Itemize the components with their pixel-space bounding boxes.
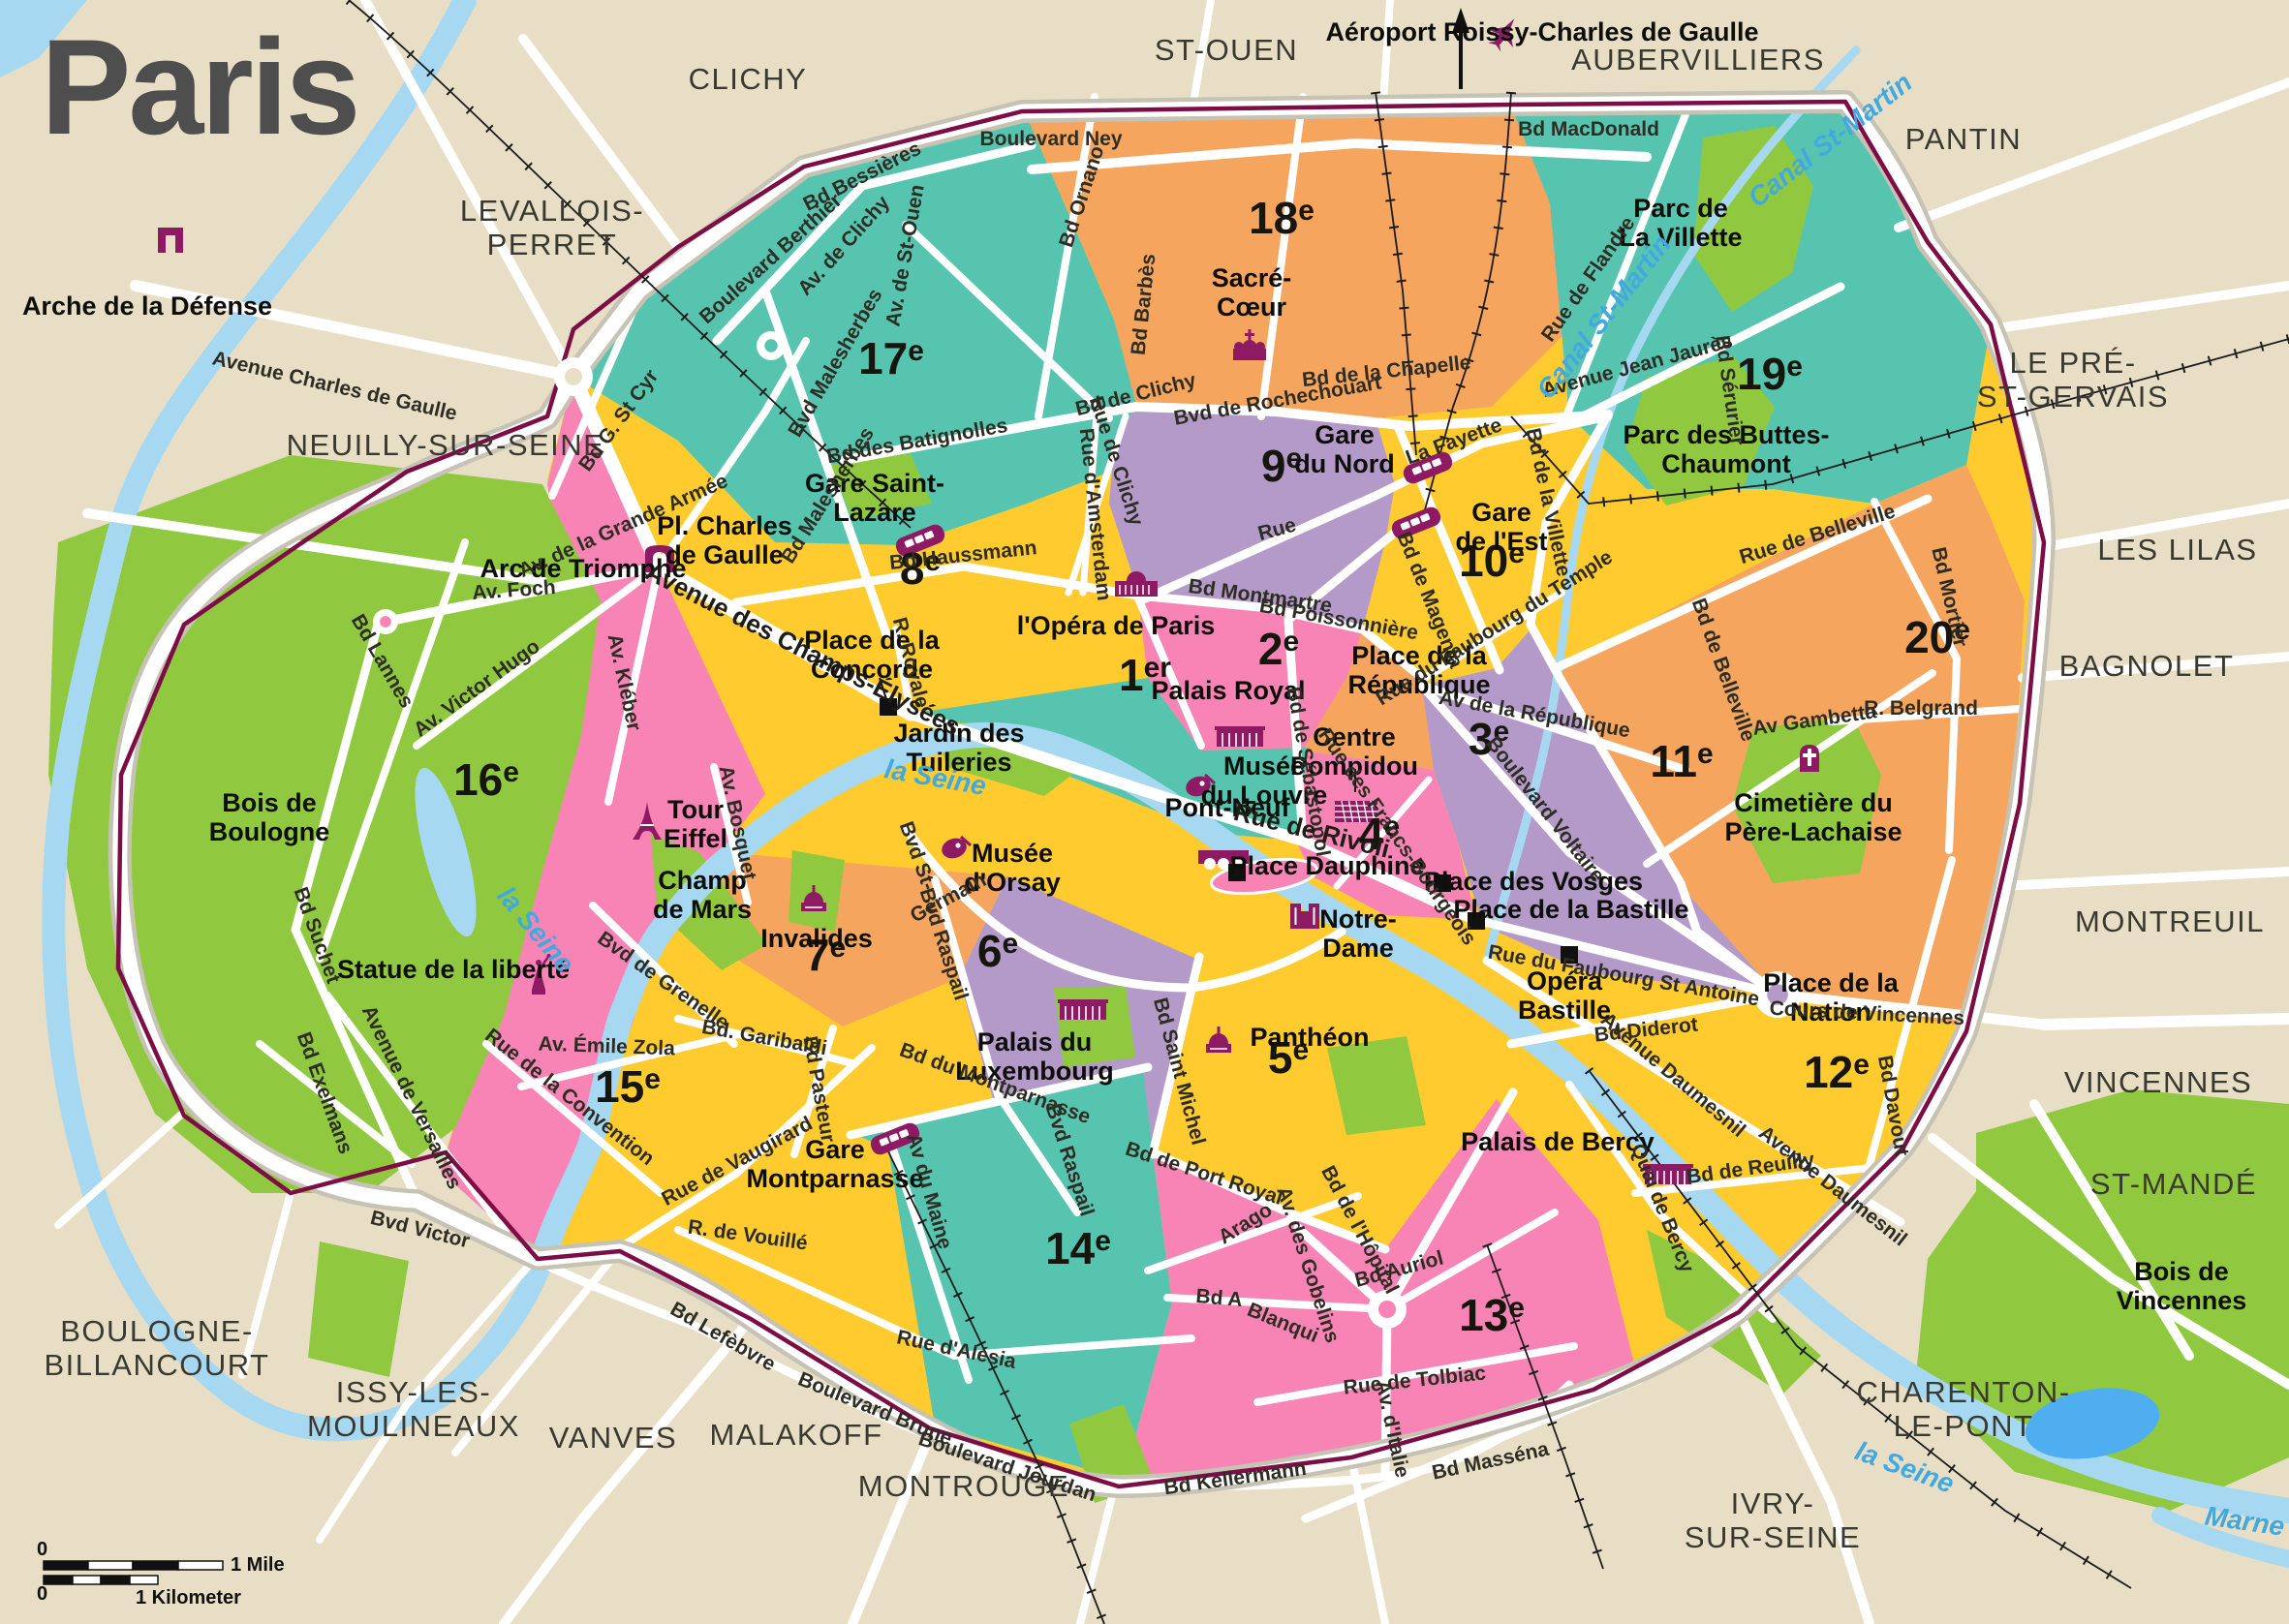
landmark-label: Palais Royal xyxy=(1151,676,1305,705)
suburb-label: CLICHY xyxy=(689,62,808,96)
scale-zero: 0 xyxy=(37,1583,47,1605)
map-title: Paris xyxy=(41,11,357,163)
suburb-label: MALAKOFF xyxy=(709,1418,882,1452)
suburb-label: NEUILLY-SUR-SEINE xyxy=(287,428,605,462)
cross-icon xyxy=(1800,745,1819,772)
suburb-label: ISSY-LES-MOULINEAUX xyxy=(307,1375,520,1443)
landmark-label: Invalides xyxy=(760,924,873,953)
scale-mile-label: 1 Mile xyxy=(231,1554,285,1576)
landmark-label: Pl. Charlesde Gaulle xyxy=(657,511,792,569)
suburb-label: AUBERVILLIERS xyxy=(1571,43,1825,77)
landmark-label: Notre-Dame xyxy=(1319,904,1397,963)
suburb-label: MONTREUIL xyxy=(2075,904,2265,938)
paris-map-page: ParisLEVALLOIS-PERRETCLICHYST-OUENAUBERV… xyxy=(0,0,2289,1624)
landmark-label: Sacré-Cœur xyxy=(1212,263,1292,322)
airport-label: Aéroport Roissy-Charles de Gaulle xyxy=(1325,17,1758,46)
street-label: Bd A xyxy=(1195,1285,1244,1311)
street-label: Bd MacDonald xyxy=(1518,118,1659,140)
suburb-label: ST-MANDÉ xyxy=(2090,1167,2257,1201)
street-label: Boulevard Ney xyxy=(979,128,1122,150)
suburb-label: ST-OUEN xyxy=(1155,33,1298,67)
landmark-label: Place des Vosges xyxy=(1424,867,1643,896)
roundabout xyxy=(380,616,391,628)
suburb-label: PANTIN xyxy=(1905,122,2022,156)
road xyxy=(2044,1019,2289,1025)
landmark-label: Palais de Bercy xyxy=(1461,1127,1655,1156)
landmark-label: Place Dauphine xyxy=(1229,851,1424,880)
landmark-label: Champde Mars xyxy=(653,866,752,924)
suburb-label: BAGNOLET xyxy=(2059,649,2235,683)
scale-zero: 0 xyxy=(37,1539,47,1560)
paris-map: ParisLEVALLOIS-PERRETCLICHYST-OUENAUBERV… xyxy=(0,0,2289,1624)
street-label: R. Belgrand xyxy=(1864,697,1978,720)
landmark-label: Cimetière duPère-Lachaise xyxy=(1724,788,1902,846)
building-icon xyxy=(1058,999,1108,1020)
suburb-label: BOULOGNE-BILLANCOURT xyxy=(45,1314,270,1382)
suburb-label: VANVES xyxy=(549,1421,677,1455)
building-icon xyxy=(1215,726,1265,747)
landmark-label: Bois deVincennes xyxy=(2117,1257,2247,1315)
landmark-label: TourEiffel xyxy=(664,795,727,853)
landmark-label: l'Opéra de Paris xyxy=(1017,611,1216,640)
roundabout xyxy=(1378,1301,1396,1318)
landmark-label: Parc deLa Villette xyxy=(1619,194,1742,252)
park-area xyxy=(789,850,845,932)
landmark-label: Statue de la liberté xyxy=(337,955,570,984)
roundabout xyxy=(565,368,582,385)
suburb-label: LES LILAS xyxy=(2097,533,2257,567)
landmark-label: Arche de la Défense xyxy=(22,291,272,321)
scale-km-label: 1 Kilometer xyxy=(136,1587,241,1609)
suburb-label: LEVALLOIS-PERRET xyxy=(460,194,644,261)
landmark-label: Place de la Bastille xyxy=(1453,895,1688,924)
landmark-label: Bois deBoulogne xyxy=(209,788,329,846)
suburb-label: VINCENNES xyxy=(2064,1065,2252,1099)
roundabout xyxy=(764,339,778,352)
landmark-label: Panthéon xyxy=(1250,1023,1369,1052)
